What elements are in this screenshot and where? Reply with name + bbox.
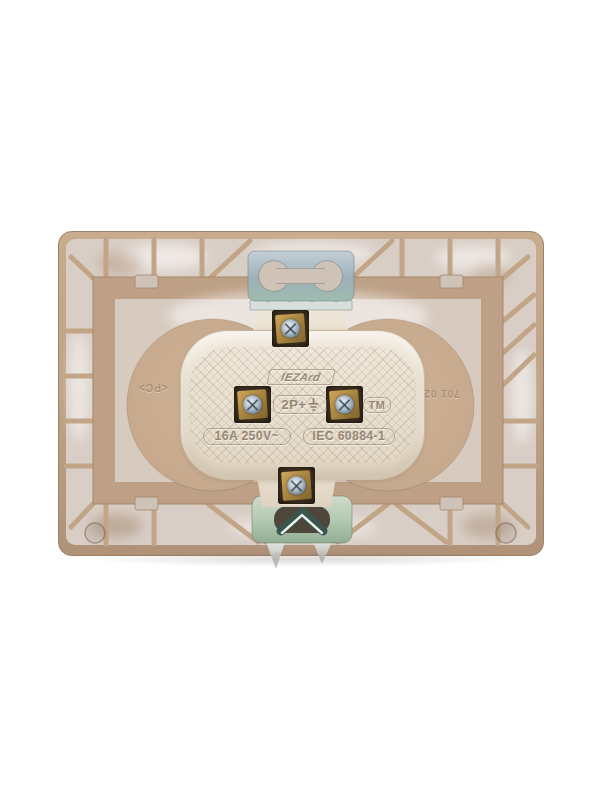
terminal-screw [243,395,262,414]
terminal-earth-top [272,310,309,347]
drop-shadow [80,551,522,567]
corner-boss-left [85,523,105,543]
brand-logo: lEZArd [266,369,335,385]
terminal-screw [335,395,354,414]
earth-ground-icon [308,398,319,411]
poles-label: 2P+ [282,396,307,413]
top-mounting-bracket [246,249,356,313]
terminal-screw [281,319,300,338]
standard-marking: IEC 60884-1 [303,428,395,445]
poles-marking: 2P+ [273,395,327,414]
product-photo: <PC> 701 0203 [0,0,600,800]
corner-boss-right [496,523,516,543]
terminal-right [326,386,363,423]
terminal-left [234,386,271,423]
trademark-marking: TM [363,397,391,413]
rating-marking: 16A 250V~ [203,428,291,445]
material-marking: <PC> [131,382,175,393]
terminal-earth-bottom [278,467,315,504]
terminal-screw [287,476,306,495]
